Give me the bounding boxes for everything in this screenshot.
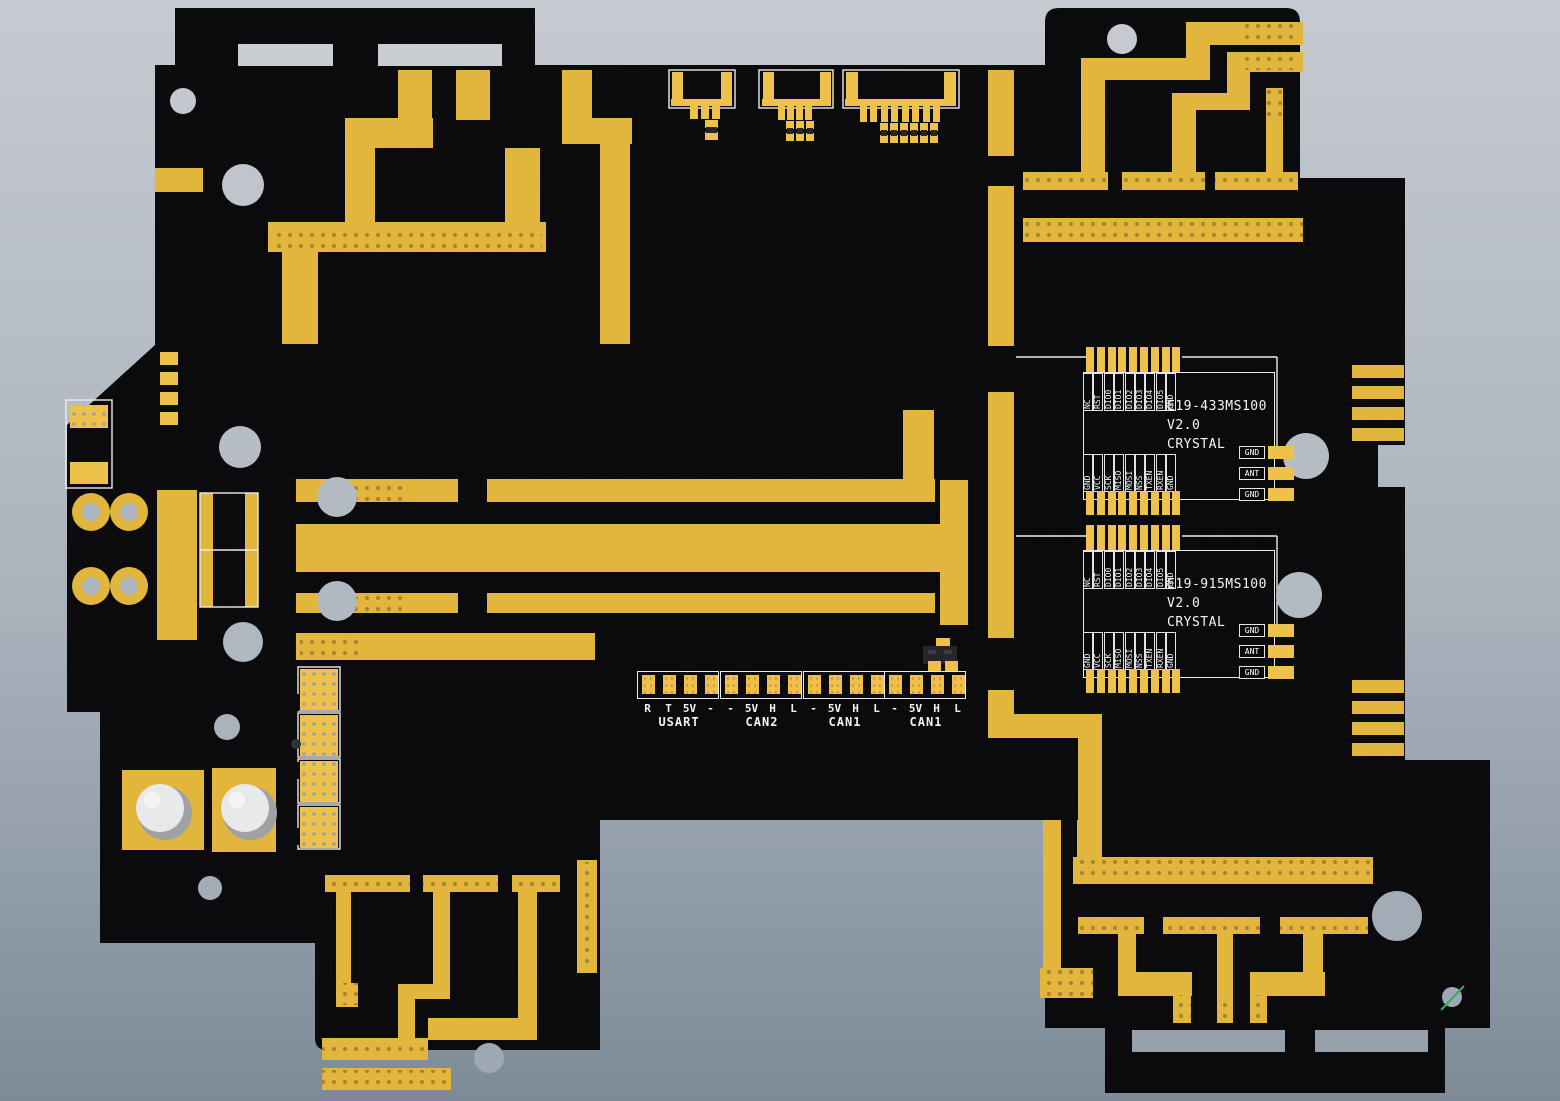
pin-label: DIO5 — [1156, 373, 1166, 411]
rf-pin-label: ANT — [1239, 645, 1265, 658]
rf-module-e19-915: NC RST DIO0 DIO1 DIO2 DIO3 DIO4 DIO5 GND… — [1083, 525, 1313, 707]
mounting-hole — [1372, 891, 1422, 941]
pcb-board-artwork — [0, 0, 1560, 1101]
mounting-hole — [222, 164, 264, 206]
pin-label: TXEN — [1145, 454, 1155, 492]
connector-outline — [884, 671, 966, 699]
rf-pin-label: GND — [1239, 446, 1265, 459]
mounting-hole — [223, 622, 263, 662]
module-rf-pin-labels: GND ANT GND — [1239, 624, 1265, 679]
pin-label: DIO1 — [1114, 373, 1124, 411]
pin-label: VCC — [1093, 454, 1103, 492]
pin-label: SCK — [1104, 454, 1114, 492]
mounting-hole — [170, 88, 196, 114]
module-rf-pads — [1268, 624, 1294, 679]
connector-pin-labels: -5VHL — [720, 702, 804, 715]
mounting-hole — [219, 426, 261, 468]
pin-label: NSS — [1135, 632, 1145, 670]
pin-label: RXEN — [1156, 632, 1166, 670]
module-rf-pin-labels: GND ANT GND — [1239, 446, 1265, 501]
pin-label: NSS — [1135, 454, 1145, 492]
can2-connector: -5VHL CAN2 — [720, 671, 804, 733]
pin-label: DIO2 — [1125, 551, 1135, 589]
can1-connector-a: -5VHL CAN1 — [803, 671, 887, 733]
mounting-hole — [214, 714, 240, 740]
mounting-hole — [1107, 24, 1137, 54]
pin-label: MOSI — [1125, 632, 1135, 670]
module-top-pads — [1086, 525, 1180, 550]
pin-label: RST — [1093, 373, 1103, 411]
connector-pin-labels: -5VHL — [803, 702, 887, 715]
connector-name: USART — [637, 715, 721, 729]
pin-label: RST — [1093, 551, 1103, 589]
pin-label: GND — [1166, 632, 1176, 670]
rf-pin-label: GND — [1239, 666, 1265, 679]
rf-pin-label: ANT — [1239, 467, 1265, 480]
pin-label: GND — [1083, 454, 1093, 492]
module-rf-pads — [1268, 446, 1294, 501]
pin-label: VCC — [1093, 632, 1103, 670]
connector-name: CAN2 — [720, 715, 804, 729]
connector-pin-labels: RT5V- — [637, 702, 721, 715]
pin-label: SCK — [1104, 632, 1114, 670]
pin-label: DIO3 — [1135, 373, 1145, 411]
mounting-hole — [317, 477, 357, 517]
pin-label: DIO4 — [1145, 373, 1155, 411]
pin-label: DIO2 — [1125, 373, 1135, 411]
pin-label: NC — [1083, 551, 1093, 589]
module-top-pin-labels: NC RST DIO0 DIO1 DIO2 DIO3 DIO4 DIO5 GND — [1083, 373, 1176, 411]
module-top-pads — [1086, 347, 1180, 372]
pin-label: DIO0 — [1104, 551, 1114, 589]
small-via-hole — [291, 739, 301, 749]
pin-label: DIO3 — [1135, 551, 1145, 589]
pin-label: NC — [1083, 373, 1093, 411]
pin-label: MISO — [1114, 454, 1124, 492]
pin-label: DIO0 — [1104, 373, 1114, 411]
rf-pin-label: GND — [1239, 624, 1265, 637]
pin-label: GND — [1166, 454, 1176, 492]
pin-label: GND — [1083, 632, 1093, 670]
connector-name: CAN1 — [884, 715, 968, 729]
mounting-hole — [474, 1043, 504, 1073]
connector-pin-labels: -5VHL — [884, 702, 968, 715]
rf-module-e19-433: NC RST DIO0 DIO1 DIO2 DIO3 DIO4 DIO5 GND… — [1083, 347, 1313, 529]
connector-name: CAN1 — [803, 715, 887, 729]
connector-outline — [637, 671, 719, 699]
module-bottom-pin-labels: GND VCC SCK MISO MOSI NSS TXEN RXEN GND — [1083, 454, 1176, 492]
pcb-3d-render: NC RST DIO0 DIO1 DIO2 DIO3 DIO4 DIO5 GND… — [0, 0, 1560, 1101]
connector-outline — [720, 671, 802, 699]
rf-pin-label: GND — [1239, 488, 1265, 501]
module-top-pin-labels: NC RST DIO0 DIO1 DIO2 DIO3 DIO4 DIO5 GND — [1083, 551, 1176, 589]
pin-label: RXEN — [1156, 454, 1166, 492]
pin-label: MISO — [1114, 632, 1124, 670]
pin-label: DIO4 — [1145, 551, 1155, 589]
pin-label: DIO1 — [1114, 551, 1124, 589]
can1-connector-b: -5VHL CAN1 — [884, 671, 968, 733]
usart-connector: RT5V- USART — [637, 671, 721, 733]
module-bottom-pin-labels: GND VCC SCK MISO MOSI NSS TXEN RXEN GND — [1083, 632, 1176, 670]
mounting-hole — [317, 581, 357, 621]
connector-outline — [803, 671, 885, 699]
pin-label: TXEN — [1145, 632, 1155, 670]
pin-label: DIO5 — [1156, 551, 1166, 589]
mounting-hole — [198, 876, 222, 900]
pin-label: MOSI — [1125, 454, 1135, 492]
module-bottom-pads — [1086, 491, 1180, 515]
module-bottom-pads — [1086, 669, 1180, 693]
